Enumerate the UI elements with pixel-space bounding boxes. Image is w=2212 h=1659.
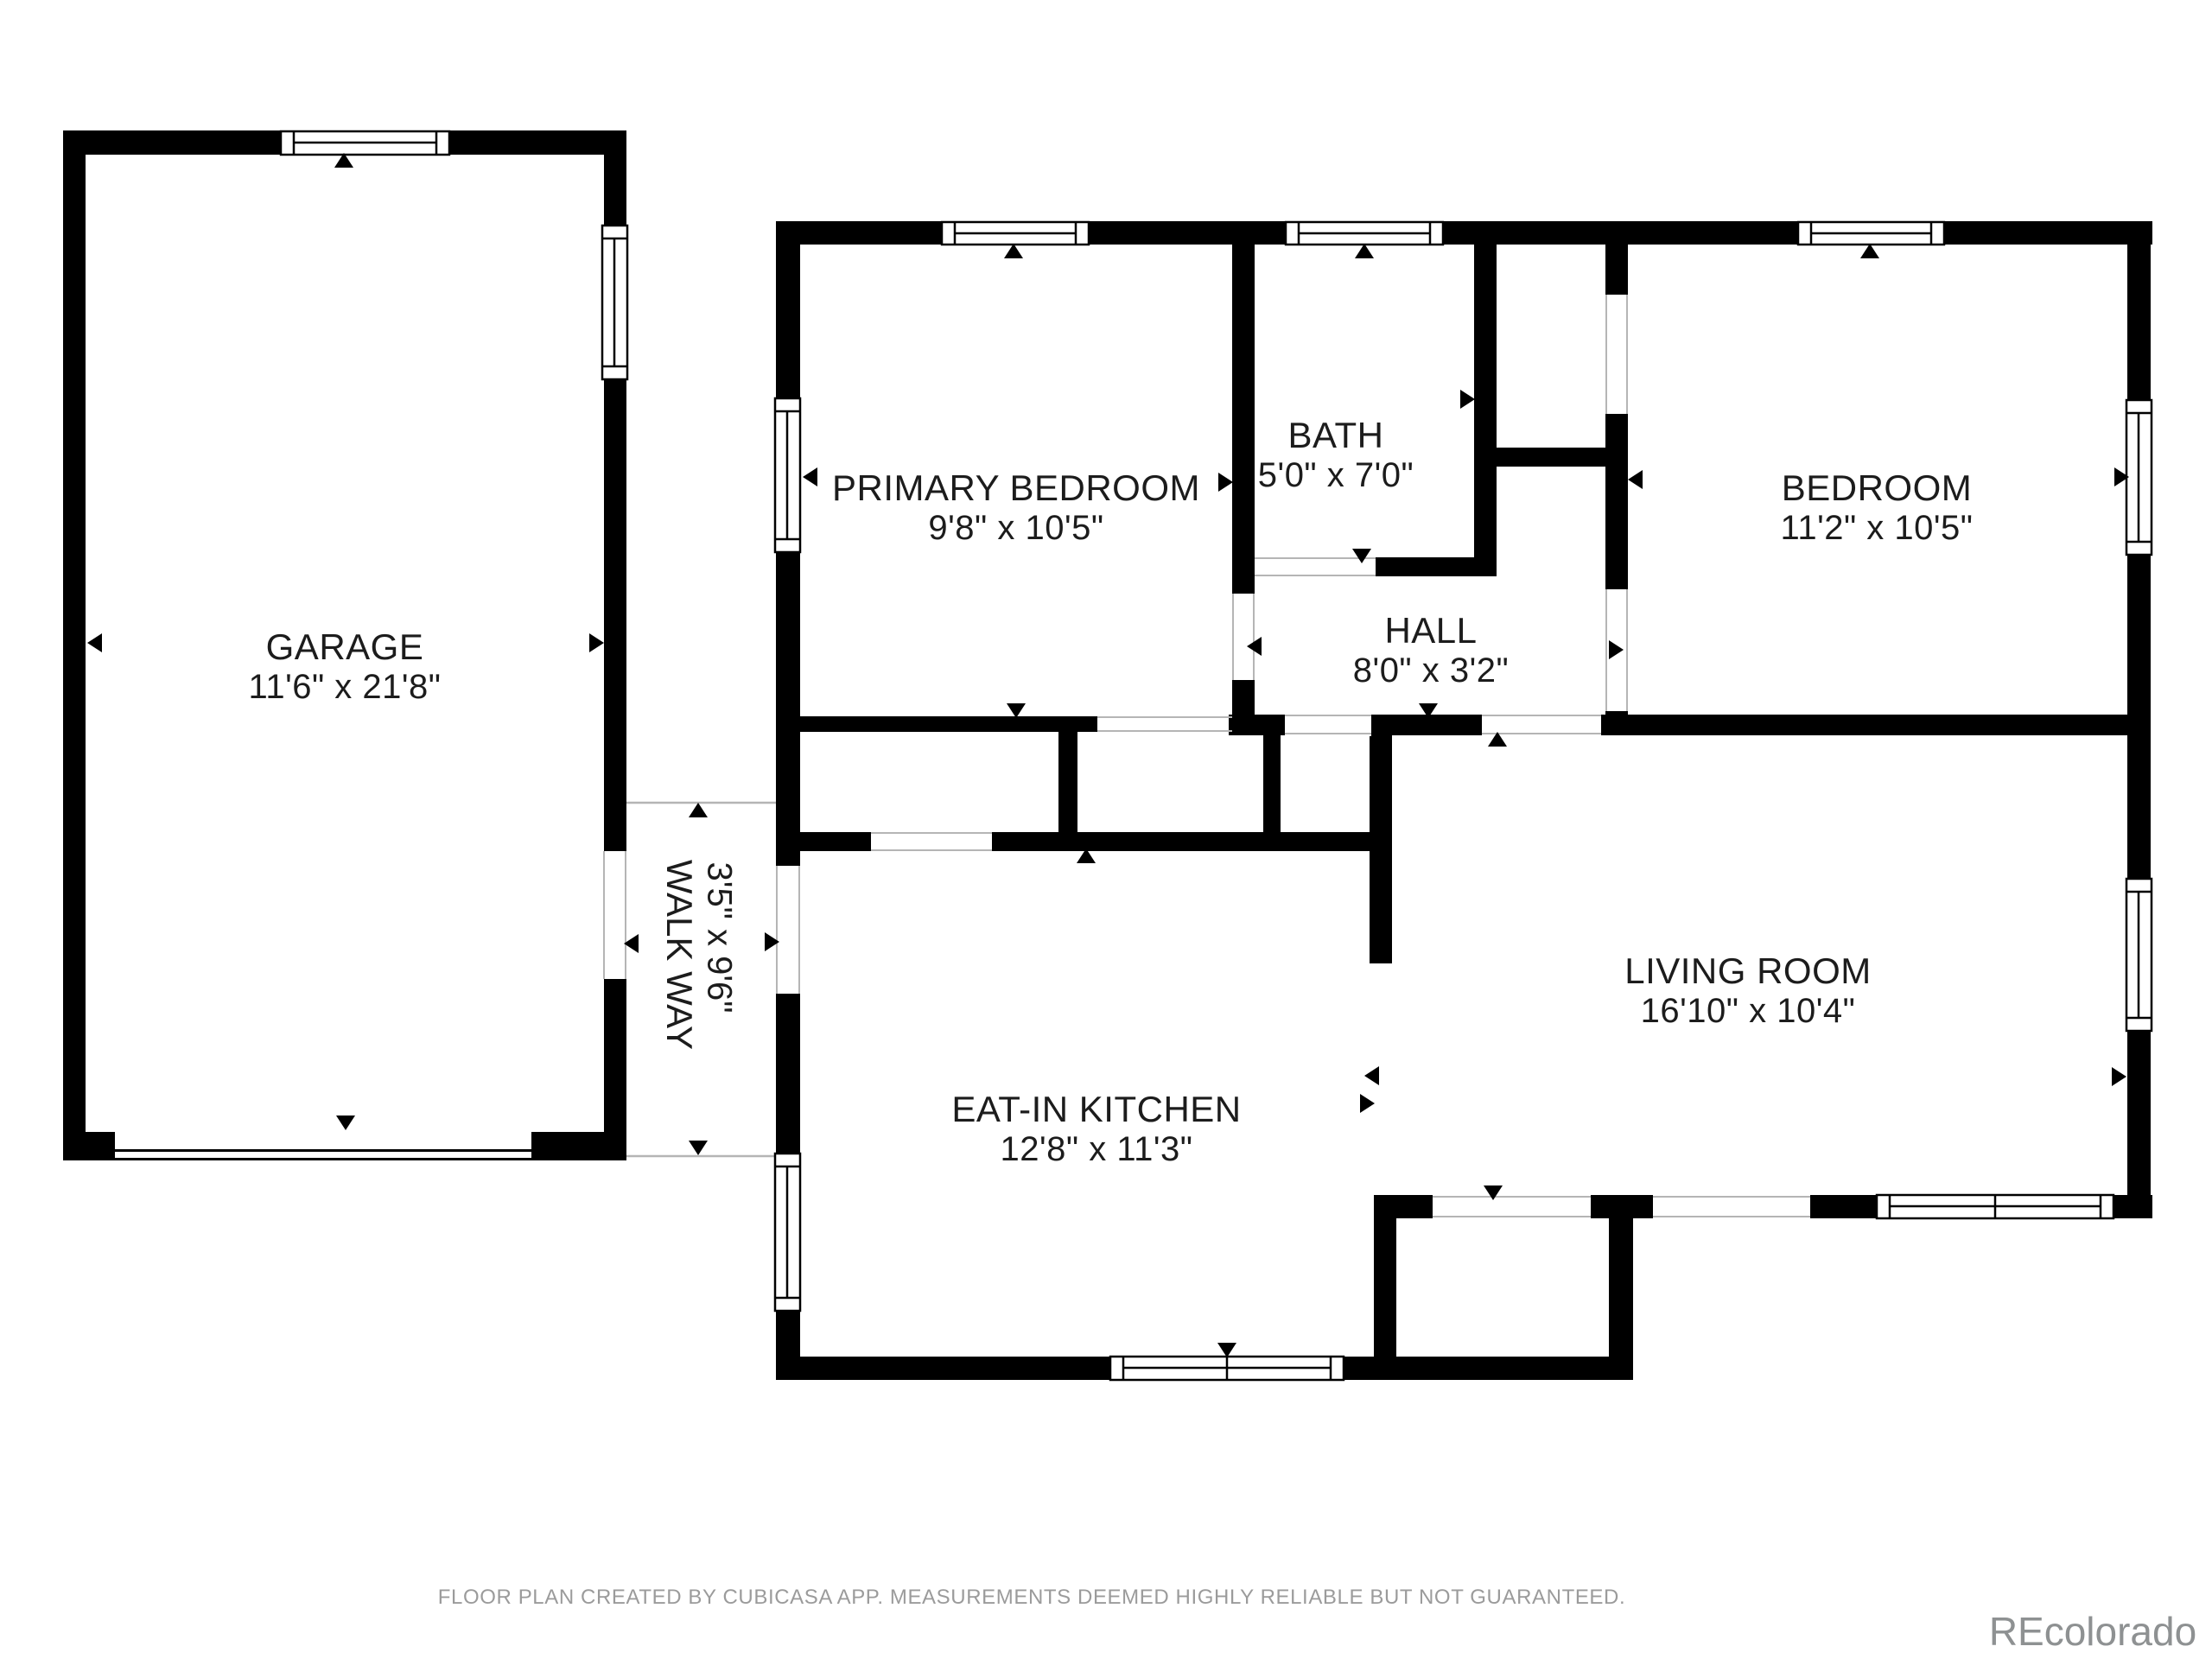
room-dims: 16'10" x 10'4" — [1624, 991, 1872, 1031]
room-name: HALL — [1353, 611, 1509, 651]
room-name: LIVING ROOM — [1624, 951, 1872, 991]
room-name: GARAGE — [249, 627, 442, 667]
floor-plan: GARAGE 11'6" x 21'8" WALK WAY 3'5" x 9'6… — [0, 0, 2212, 1659]
room-label-primary-bedroom: PRIMARY BEDROOM 9'8" x 10'5" — [832, 468, 1200, 548]
labels-layer: GARAGE 11'6" x 21'8" WALK WAY 3'5" x 9'6… — [0, 0, 2212, 1659]
room-dims: 8'0" x 3'2" — [1353, 651, 1509, 690]
room-name: BATH — [1258, 416, 1414, 455]
room-dims: 11'2" x 10'5" — [1781, 508, 1974, 548]
room-dims: 9'8" x 10'5" — [832, 508, 1200, 548]
room-dims: 12'8" x 11'3" — [951, 1129, 1241, 1169]
room-name: EAT-IN KITCHEN — [951, 1090, 1241, 1129]
room-name: PRIMARY BEDROOM — [832, 468, 1200, 508]
watermark-recolorado: REcolorado — [1989, 1608, 2196, 1655]
room-dims: 11'6" x 21'8" — [249, 667, 442, 707]
room-name: BEDROOM — [1781, 468, 1974, 508]
room-label-walkway-dims: 3'5" x 9'6" — [700, 862, 739, 1014]
room-label-bedroom: BEDROOM 11'2" x 10'5" — [1781, 468, 1974, 548]
room-label-hall: HALL 8'0" x 3'2" — [1353, 611, 1509, 690]
footer-disclaimer: FLOOR PLAN CREATED BY CUBICASA APP. MEAS… — [438, 1586, 1626, 1610]
room-label-walkway-name: WALK WAY — [658, 860, 700, 1050]
room-label-bath: BATH 5'0" x 7'0" — [1258, 416, 1414, 495]
room-dims: 5'0" x 7'0" — [1258, 455, 1414, 495]
room-label-living-room: LIVING ROOM 16'10" x 10'4" — [1624, 951, 1872, 1031]
room-label-eat-in-kitchen: EAT-IN KITCHEN 12'8" x 11'3" — [951, 1090, 1241, 1169]
room-label-garage: GARAGE 11'6" x 21'8" — [249, 627, 442, 707]
